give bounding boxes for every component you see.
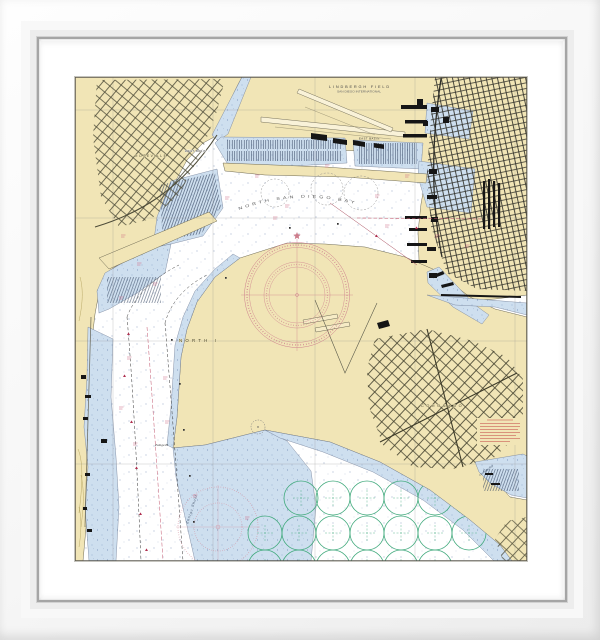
label-airport-sub: SAN DIEGO INTERNATIONAL [337,91,382,94]
chart-svg: LINDBERGH FIELD SAN DIEGO INTERNATIONAL … [75,77,527,561]
framed-chart-photo: LINDBERGH FIELD SAN DIEGO INTERNATIONAL … [0,0,600,640]
label-east-basin: EAST BASIN [359,137,380,141]
nautical-chart-print: LINDBERGH FIELD SAN DIEGO INTERNATIONAL … [75,77,527,561]
label-coronado: CORONADO [421,404,464,408]
label-north-island: NORTH I [179,338,219,343]
label-zuniga-point: Zuniga Pt [154,443,169,447]
label-west-basin: WEST BASIN [185,149,207,153]
label-roseville: ROSEVILLE [135,154,167,158]
label-airport: LINDBERGH FIELD [329,85,391,89]
